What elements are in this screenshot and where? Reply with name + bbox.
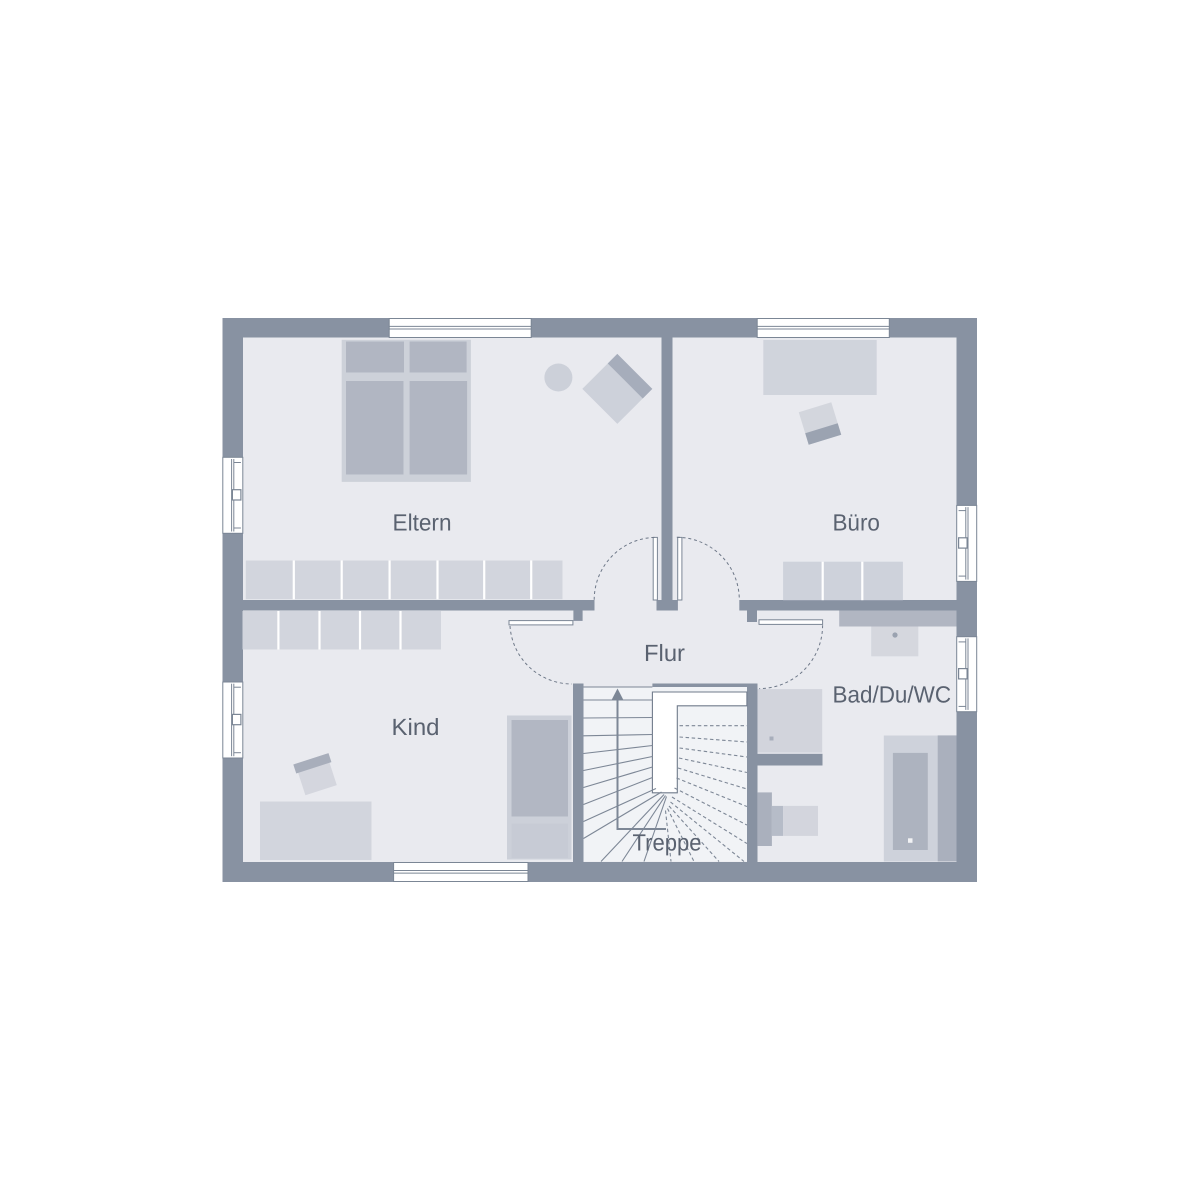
svg-text:Büro: Büro: [832, 510, 880, 536]
svg-text:Kind: Kind: [392, 714, 440, 740]
svg-text:Flur: Flur: [644, 640, 685, 666]
svg-text:Eltern: Eltern: [393, 509, 452, 535]
svg-text:Bad/Du/WC: Bad/Du/WC: [833, 682, 952, 708]
svg-text:Treppe: Treppe: [633, 830, 702, 856]
